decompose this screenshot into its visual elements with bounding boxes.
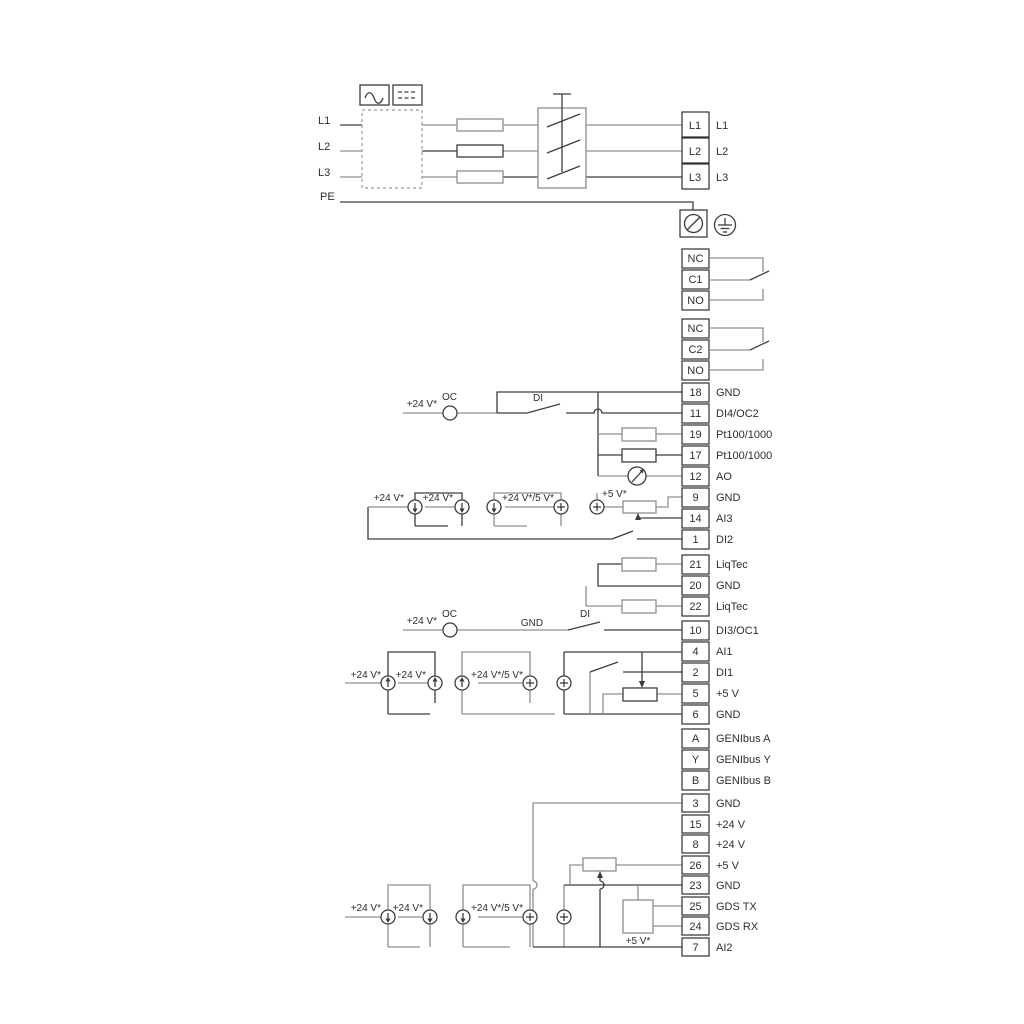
terminal-label: DI2 [716, 534, 733, 546]
phase-label-pe: PE [320, 191, 335, 203]
terminal-label: AI2 [716, 942, 733, 954]
terminal-label: GND [716, 798, 741, 810]
terminal-out-l1: L1 [682, 112, 709, 137]
resistor-liqtec-22 [622, 600, 656, 613]
terminal-number: 5 [692, 688, 698, 700]
terminal-label: GENIbus A [716, 733, 771, 745]
terminal-no1: NO [682, 291, 709, 310]
terminal-number: 21 [689, 559, 701, 571]
label-di3: DI [580, 609, 590, 620]
current-source-icon [423, 910, 437, 924]
terminal-number: 19 [689, 429, 701, 441]
terminal-nc1: NC [682, 249, 709, 268]
open-collector-icon [443, 406, 457, 420]
current-source-icon [428, 676, 442, 690]
terminal-label: DI1 [716, 667, 733, 679]
voltage-source-icon [523, 676, 537, 690]
terminal-number: NC [688, 323, 704, 335]
terminal-number: 11 [690, 408, 701, 420]
terminal-label: GENIbus Y [716, 754, 771, 766]
terminal-label: DI4/OC2 [716, 408, 759, 420]
voltage-source-icon [554, 500, 568, 514]
label-gnd-oc1: GND [521, 618, 543, 629]
label-24v-ai2-2: +24 V* [393, 903, 423, 914]
resistor-liqtec-21 [622, 558, 656, 571]
terminal-number: NO [687, 295, 704, 307]
phase-label-l3: L3 [318, 167, 330, 179]
terminal-number: 20 [689, 580, 701, 592]
terminal-label: +5 V [716, 860, 740, 872]
terminal-label: +24 V [716, 839, 746, 851]
current-source-icon [408, 500, 422, 514]
terminal-label: GND [716, 492, 741, 504]
open-collector-icon [443, 623, 457, 637]
terminal-nc2: NC [682, 319, 709, 338]
label-oc1: OC [442, 609, 457, 620]
gds-sensor-box [623, 900, 653, 933]
label-24v-oc2: +24 V* [407, 399, 437, 410]
terminal-label: +24 V [716, 819, 746, 831]
label-24v-ai1-2: +24 V* [396, 670, 426, 681]
voltage-source-icon [557, 910, 571, 924]
terminal-number: 7 [692, 942, 698, 954]
out-label-l2: L2 [716, 146, 728, 158]
current-source-icon [487, 500, 501, 514]
out-label-l3: L3 [716, 172, 728, 184]
out-label-l1: L1 [716, 120, 728, 132]
terminal-number: 10 [689, 625, 701, 637]
terminal-number: L3 [689, 172, 701, 184]
voltage-source-icon [523, 910, 537, 924]
label-oc2: OC [442, 392, 457, 403]
terminal-number: 22 [689, 601, 701, 613]
terminal-label: GND [716, 387, 741, 399]
terminal-number: 15 [689, 819, 701, 831]
label-24v-ai2-1: +24 V* [351, 903, 381, 914]
terminal-out-l2: L2 [682, 138, 709, 163]
terminal-label: GENIbus B [716, 775, 771, 787]
terminal-number: C2 [688, 344, 702, 356]
terminal-number: 3 [692, 798, 698, 810]
terminal-number: 17 [689, 450, 701, 462]
terminal-number: 14 [689, 513, 701, 525]
terminal-no2: NO [682, 361, 709, 380]
label-24v5v-ai2: +24 V*/5 V* [471, 903, 523, 914]
terminal-number: 6 [692, 709, 698, 721]
label-5v-ai3: +5 V* [602, 489, 627, 500]
terminal-number: 24 [689, 921, 701, 933]
terminal-label: LiqTec [716, 601, 748, 613]
terminal-label: GND [716, 580, 741, 592]
analog-output-meter-icon [628, 467, 646, 485]
terminal-label: Pt100/1000 [716, 429, 772, 441]
current-source-icon [381, 676, 395, 690]
terminal-label: Pt100/1000 [716, 450, 772, 462]
label-5v-gds: +5 V* [626, 936, 651, 947]
terminal-number: L2 [689, 146, 701, 158]
terminal-number: B [692, 775, 699, 787]
terminal-label: GND [716, 880, 741, 892]
terminal-number: 12 [689, 471, 701, 483]
terminal-number: 23 [689, 880, 701, 892]
background [0, 0, 1024, 1024]
terminal-number: 18 [689, 387, 701, 399]
wiring-diagram: L1 L2 L3 PE [0, 0, 1024, 1024]
label-24v-oc1: +24 V* [407, 616, 437, 627]
terminal-number: L1 [689, 120, 701, 132]
terminal-number: NC [688, 253, 704, 265]
fuse-l1 [457, 119, 503, 131]
terminal-label: LiqTec [716, 559, 748, 571]
terminal-number: 26 [689, 860, 701, 872]
terminal-label: AI3 [716, 513, 733, 525]
terminal-number: C1 [688, 274, 702, 286]
terminal-c1: C1 [682, 270, 709, 289]
terminal-label: GDS TX [716, 901, 757, 913]
current-source-icon [456, 910, 470, 924]
phase-label-l2: L2 [318, 141, 330, 153]
phase-label-l1: L1 [318, 115, 330, 127]
earth-icon [715, 215, 736, 236]
voltage-source-icon [590, 500, 604, 514]
terminal-label: +5 V [716, 688, 740, 700]
resistor-pt100-19 [622, 428, 656, 441]
current-source-icon [455, 676, 469, 690]
label-24v-ai3-2: +24 V* [423, 493, 453, 504]
terminal-number: 25 [689, 901, 701, 913]
terminal-number: NO [687, 365, 704, 377]
main-switch-icon [538, 94, 586, 188]
terminal-number: Y [692, 754, 700, 766]
fuse-l3 [457, 171, 503, 183]
current-source-icon [455, 500, 469, 514]
dc-icon [393, 85, 422, 105]
terminal-label: AI1 [716, 646, 733, 658]
terminal-label: GND [716, 709, 741, 721]
pe-terminal-icon [680, 210, 707, 237]
terminal-label: DI3/OC1 [716, 625, 759, 637]
label-24v5v-ai1: +24 V*/5 V* [471, 670, 523, 681]
terminal-label: GDS RX [716, 921, 759, 933]
label-24v-ai3-1: +24 V* [374, 493, 404, 504]
terminal-number: 8 [692, 839, 698, 851]
label-24v5v-ai3: +24 V*/5 V* [502, 493, 554, 504]
terminal-number: 9 [692, 492, 698, 504]
terminal-label: AO [716, 471, 732, 483]
terminal-number: 1 [692, 534, 698, 546]
terminal-number: 2 [692, 667, 698, 679]
terminal-number: A [692, 733, 700, 745]
voltage-source-icon [557, 676, 571, 690]
terminal-c2: C2 [682, 340, 709, 359]
terminal-out-l3: L3 [682, 164, 709, 189]
fuse-l2 [457, 145, 503, 157]
ac-icon [360, 85, 389, 105]
resistor-pt100-17 [622, 449, 656, 462]
label-24v-ai1-1: +24 V* [351, 670, 381, 681]
terminal-number: 4 [692, 646, 698, 658]
label-di4: DI [533, 393, 543, 404]
